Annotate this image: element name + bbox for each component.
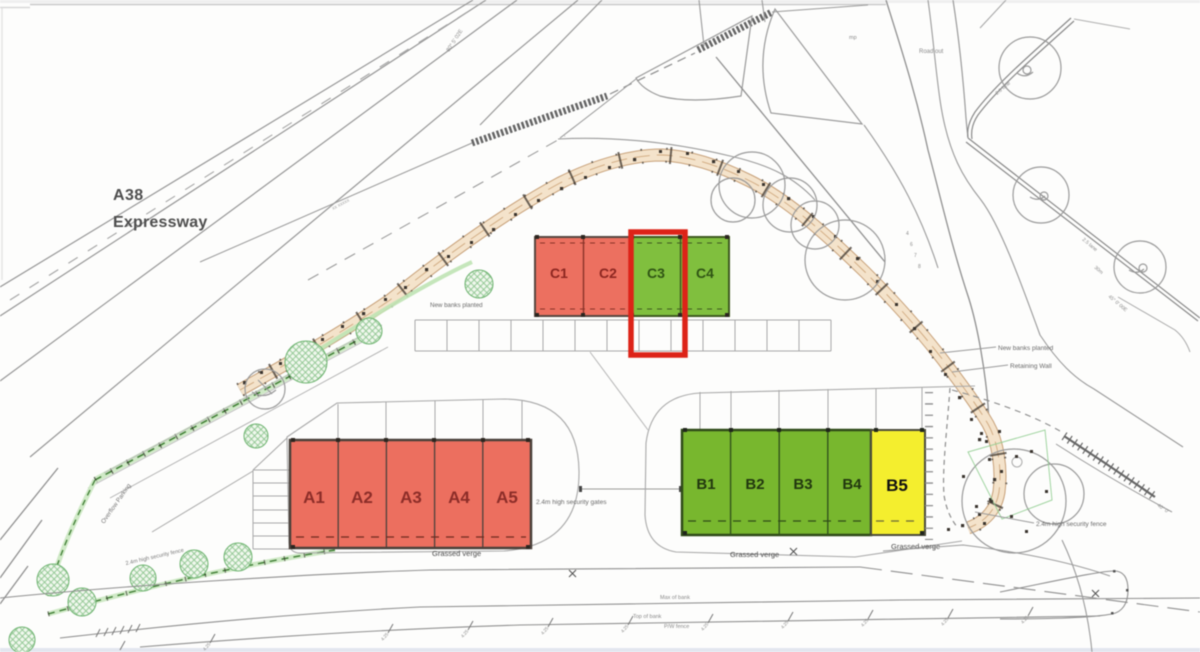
svg-text:A1: A1 (303, 488, 325, 507)
svg-text:B4: B4 (842, 476, 862, 493)
svg-text:P/W fence: P/W fence (664, 624, 689, 630)
svg-text:A5: A5 (496, 488, 518, 507)
svg-text:mp: mp (849, 35, 857, 41)
svg-text:C3: C3 (647, 265, 665, 281)
svg-text:Expressway: Expressway (113, 214, 208, 231)
svg-text:Top of bank: Top of bank (633, 614, 662, 620)
svg-text:C2: C2 (599, 265, 617, 281)
svg-text:7: 7 (914, 253, 917, 259)
svg-text:2.4m high security gates: 2.4m high security gates (536, 499, 607, 506)
svg-text:Max of bank: Max of bank (660, 595, 690, 601)
svg-text:Road out: Road out (919, 49, 944, 55)
svg-text:New banks planted: New banks planted (430, 302, 483, 309)
svg-text:A2: A2 (351, 488, 373, 507)
svg-text:A4: A4 (448, 488, 470, 507)
svg-text:A38: A38 (113, 187, 144, 204)
svg-text:C4: C4 (696, 265, 714, 281)
svg-text:Grassed verge: Grassed verge (432, 549, 481, 558)
svg-text:Retaining Wall: Retaining Wall (1010, 363, 1052, 370)
svg-text:2.4m high security fence: 2.4m high security fence (1036, 521, 1107, 528)
svg-text:Grassed verge: Grassed verge (730, 550, 779, 559)
svg-text:B5: B5 (886, 476, 908, 495)
svg-text:8: 8 (918, 264, 921, 270)
svg-text:A3: A3 (400, 488, 422, 507)
svg-text:B3: B3 (793, 476, 812, 493)
svg-text:B1: B1 (696, 476, 715, 493)
svg-text:6: 6 (910, 242, 913, 248)
svg-text:4: 4 (906, 231, 909, 237)
svg-text:C1: C1 (550, 265, 568, 281)
svg-text:B2: B2 (745, 476, 764, 493)
svg-text:New banks planted: New banks planted (998, 345, 1054, 352)
